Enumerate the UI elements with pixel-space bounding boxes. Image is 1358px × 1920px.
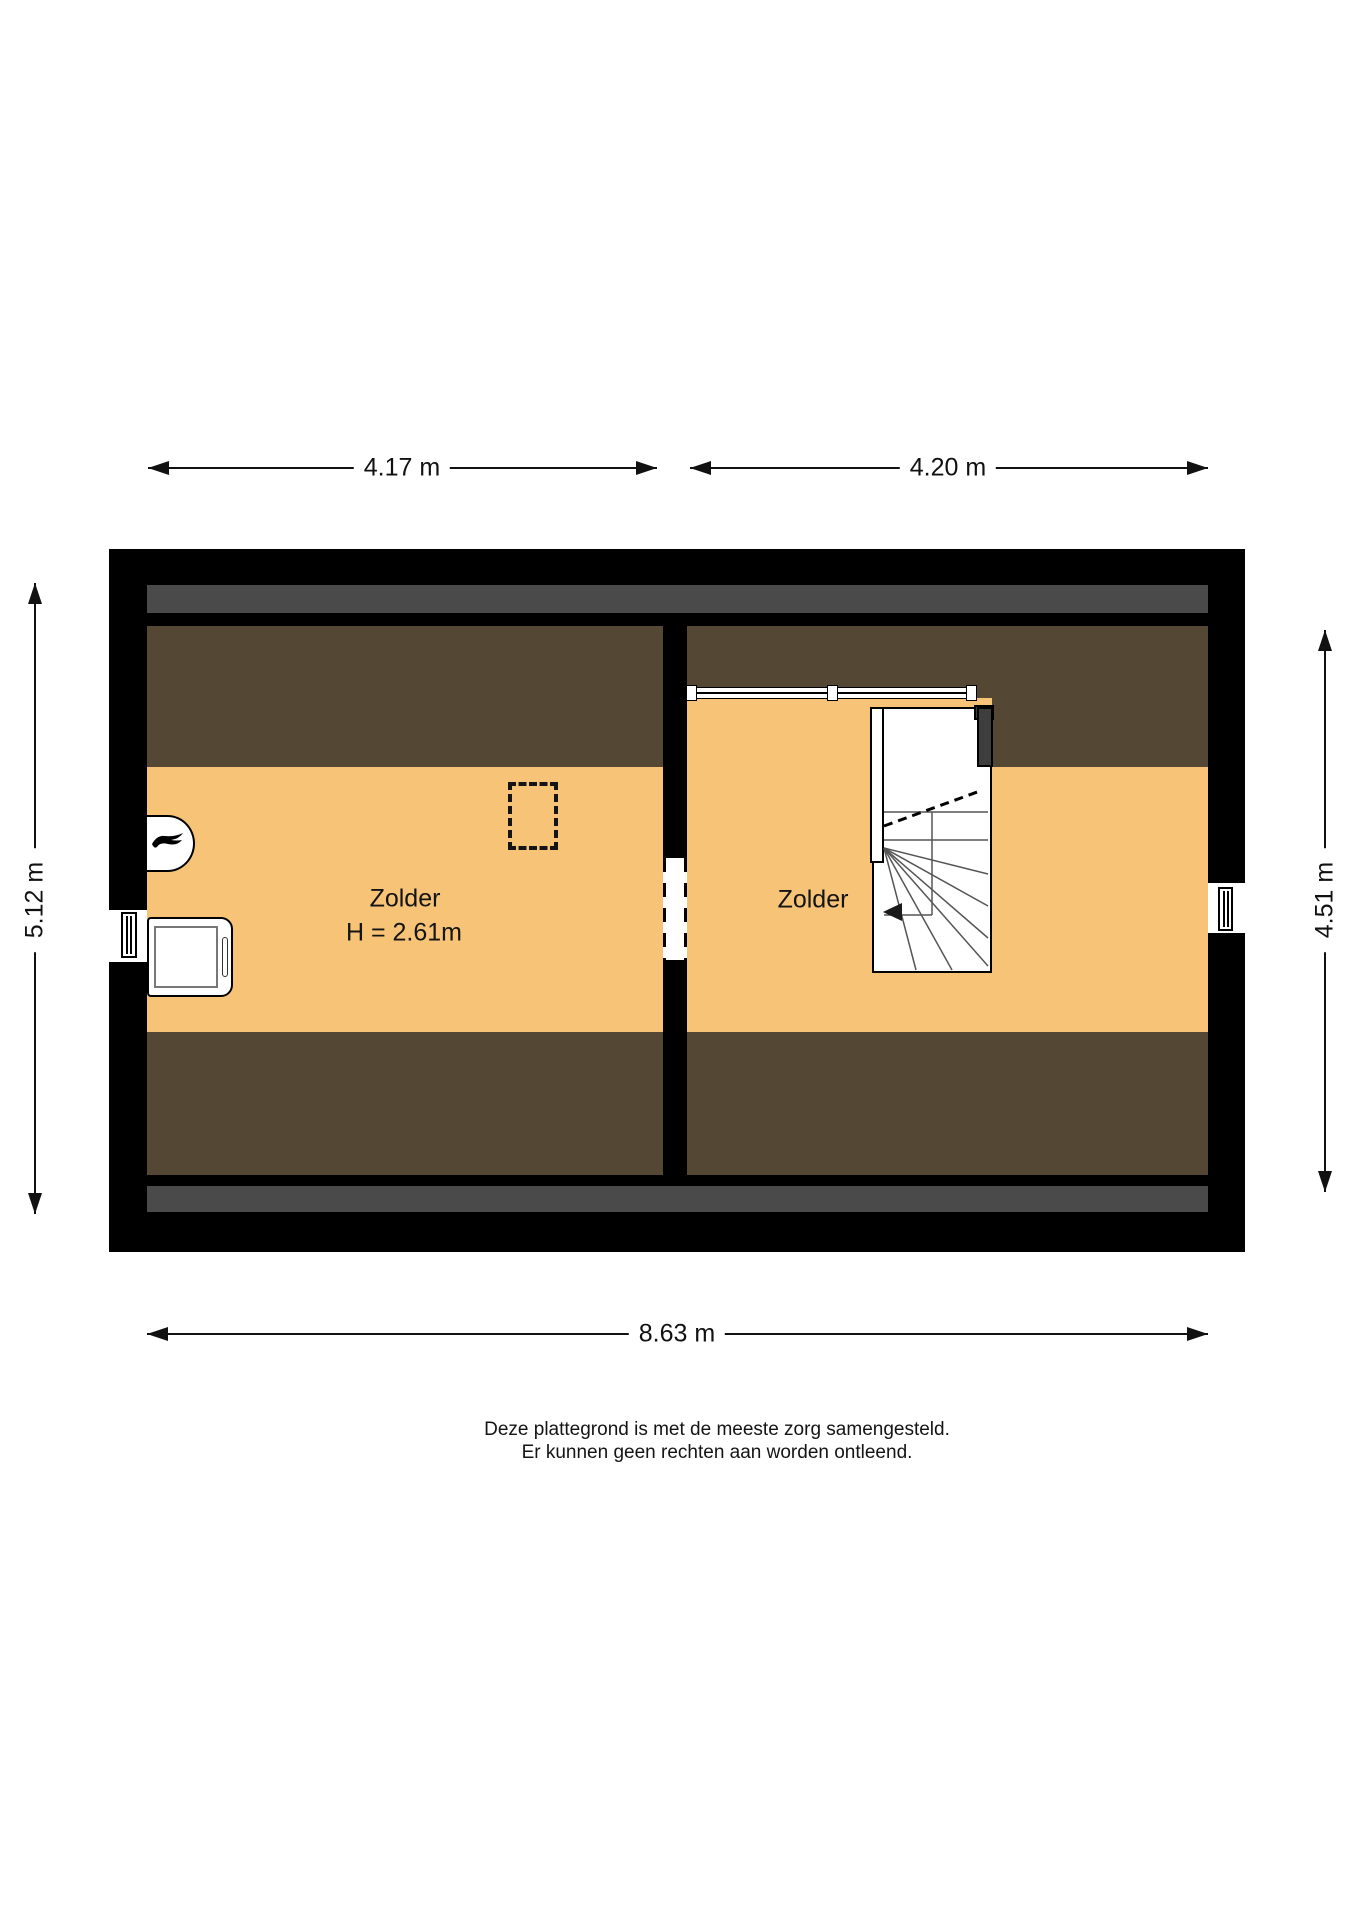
window-pane-line	[1227, 891, 1229, 927]
arrow-down-icon	[28, 1193, 42, 1214]
window-pane-line	[126, 916, 128, 954]
room-label-right: Zolder	[778, 886, 849, 915]
railing-post	[686, 685, 697, 701]
divider-wall	[663, 613, 687, 1186]
washing-machine-handle	[222, 937, 228, 977]
window-pane-line	[1223, 891, 1225, 927]
dim-label-right-depth: 4.51 m	[1311, 848, 1340, 952]
arrow-up-icon	[1318, 630, 1332, 651]
disclaimer-line-1: Deze plattegrond is met de meeste zorg s…	[484, 1419, 950, 1441]
arrow-right-icon	[636, 461, 657, 475]
bottom-ridge-strip	[147, 1186, 1208, 1212]
arrow-left-icon	[147, 1327, 168, 1341]
arrow-right-icon	[1187, 461, 1208, 475]
door-opening	[663, 858, 687, 960]
flame-icon	[151, 831, 185, 855]
room-ceiling-height-left: H = 2.61m	[346, 919, 462, 948]
room-label-left: Zolder	[370, 885, 441, 914]
window-pane-line	[130, 916, 132, 954]
arrow-down-icon	[1318, 1171, 1332, 1192]
washing-machine	[147, 917, 233, 997]
winder-staircase	[872, 707, 992, 973]
disclaimer-line-2: Er kunnen geen rechten aan worden ontlee…	[522, 1442, 913, 1464]
door-frame-dash	[684, 858, 687, 960]
dim-label-left-depth: 5.12 m	[21, 848, 50, 952]
arrow-up-icon	[28, 583, 42, 604]
arrow-left-icon	[148, 461, 169, 475]
top-ridge-strip	[147, 585, 1208, 613]
arrow-left-icon	[690, 461, 711, 475]
window-icon	[1218, 887, 1233, 931]
dim-label-room-right-width: 4.20 m	[900, 454, 996, 483]
dim-label-total-width: 8.63 m	[629, 1320, 725, 1349]
stair-direction-arrow-icon	[883, 903, 902, 921]
floor-interior	[147, 585, 1208, 1212]
window-icon	[121, 912, 137, 958]
door-frame-dash	[663, 858, 666, 960]
floorplan-page: 4.17 m 4.20 m 5.12 m 4.51 m 8.63 m	[0, 0, 1358, 1920]
washing-machine-door	[154, 926, 218, 988]
dim-label-room-left-width: 4.17 m	[354, 454, 450, 483]
arrow-right-icon	[1187, 1327, 1208, 1341]
railing-post	[966, 685, 977, 701]
boiler	[145, 815, 195, 872]
railing-post	[827, 685, 838, 701]
roof-window-dashed	[508, 782, 558, 850]
